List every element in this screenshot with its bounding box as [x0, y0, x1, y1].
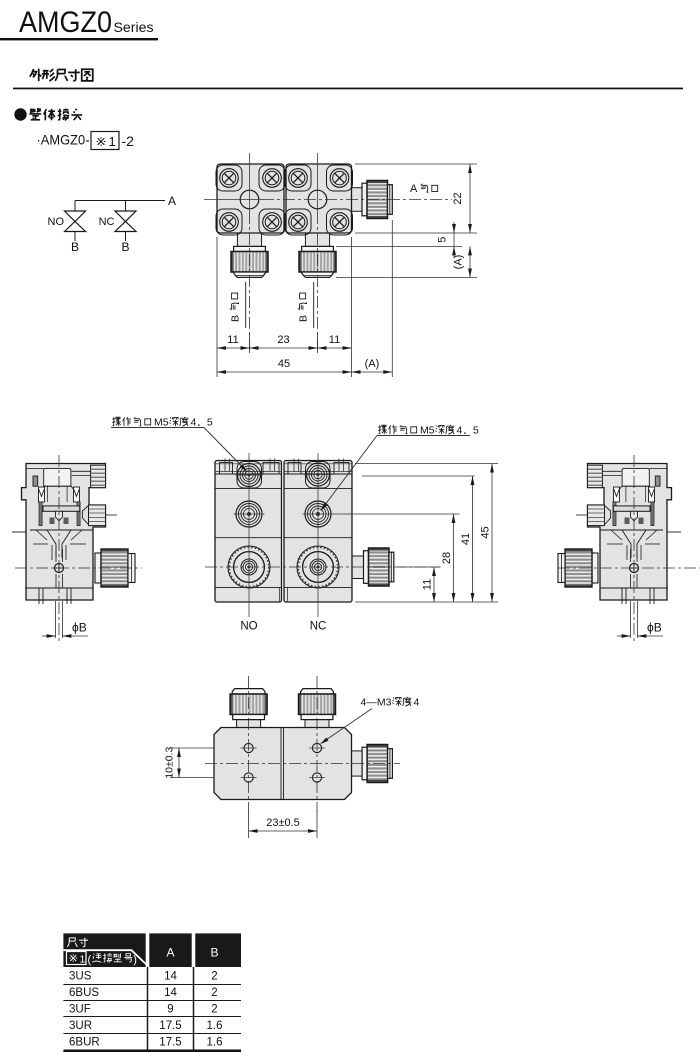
svg-text:3US: 3US: [69, 970, 92, 982]
svg-text:B: B: [229, 315, 241, 322]
svg-text:28: 28: [441, 552, 453, 564]
svg-text:(A): (A): [365, 358, 380, 370]
svg-text:): ): [133, 954, 137, 966]
svg-text:ϕB: ϕB: [72, 621, 87, 635]
svg-text:4: 4: [414, 697, 420, 709]
svg-text:22: 22: [452, 192, 464, 204]
svg-text:1.6: 1.6: [207, 1036, 223, 1048]
svg-text:3UF: 3UF: [69, 1003, 91, 1015]
svg-text:23: 23: [277, 334, 289, 346]
svg-text:B: B: [210, 946, 218, 960]
svg-text:B: B: [71, 240, 79, 254]
svg-text:B: B: [121, 240, 129, 254]
svg-text:23±0.5: 23±0.5: [266, 817, 300, 829]
svg-text:17.5: 17.5: [159, 1036, 181, 1048]
svg-text:45: 45: [278, 358, 290, 370]
svg-text:2: 2: [211, 970, 217, 982]
svg-text:M5: M5: [420, 425, 435, 437]
svg-text:NC: NC: [99, 216, 115, 228]
svg-text:17.5: 17.5: [159, 1020, 181, 1032]
svg-text:M5: M5: [154, 417, 169, 429]
svg-text:11: 11: [227, 334, 238, 346]
svg-text:A: A: [168, 194, 176, 208]
svg-text:2: 2: [211, 987, 217, 999]
svg-text:ϕB: ϕB: [647, 621, 662, 635]
svg-text:4．5: 4．5: [457, 425, 479, 437]
svg-text:1: 1: [109, 134, 116, 149]
svg-text:14: 14: [164, 987, 177, 999]
svg-text:14: 14: [164, 970, 177, 982]
svg-text:1: 1: [80, 954, 86, 966]
svg-text:4—M3: 4—M3: [361, 697, 392, 709]
svg-text:NC: NC: [310, 621, 327, 633]
svg-text:-2: -2: [122, 133, 135, 149]
svg-text:10±0.3: 10±0.3: [164, 747, 176, 779]
svg-text:NO: NO: [240, 621, 257, 633]
svg-text:11: 11: [422, 579, 434, 590]
svg-text:(A): (A): [453, 255, 465, 270]
svg-text:11: 11: [329, 334, 340, 346]
svg-text:9: 9: [167, 1003, 173, 1015]
svg-text:A: A: [166, 946, 174, 960]
svg-text:NO: NO: [48, 216, 65, 228]
svg-text:45: 45: [480, 526, 492, 538]
svg-text:6BUS: 6BUS: [69, 987, 99, 999]
svg-text:B: B: [297, 315, 309, 322]
svg-text:(: (: [88, 954, 92, 966]
svg-text:5: 5: [437, 237, 449, 243]
svg-text:6BUR: 6BUR: [69, 1036, 100, 1048]
svg-text:4．5: 4．5: [191, 417, 213, 429]
svg-text:2: 2: [211, 1003, 217, 1015]
svg-text:3UR: 3UR: [69, 1020, 92, 1032]
svg-text:Series: Series: [114, 20, 154, 35]
svg-text:·AMGZ0-: ·AMGZ0-: [37, 132, 90, 148]
svg-text:41: 41: [460, 533, 472, 545]
svg-text:AMGZ0: AMGZ0: [19, 6, 112, 39]
svg-text:1.6: 1.6: [207, 1020, 223, 1032]
svg-text:A: A: [410, 183, 418, 195]
